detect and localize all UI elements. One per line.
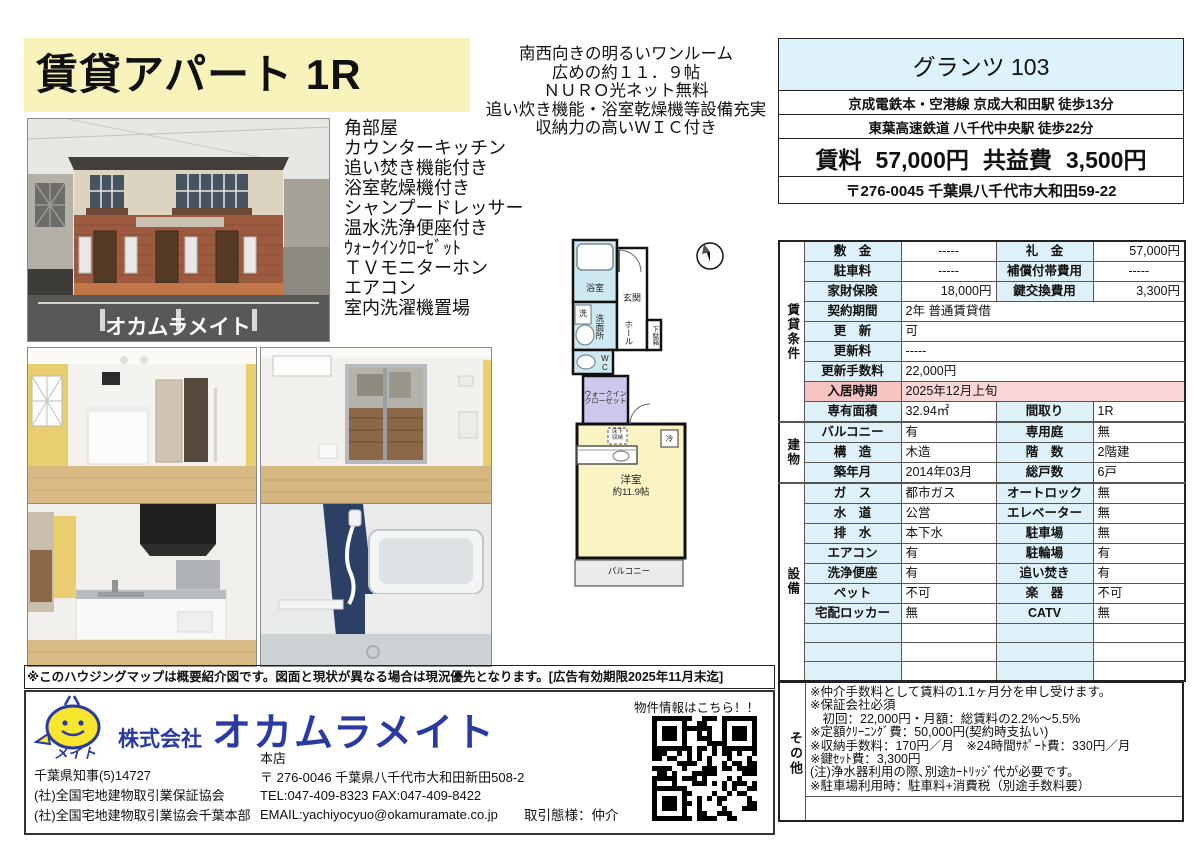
qr-code xyxy=(652,716,757,821)
head-office-info: 本店 〒 276-0046 千葉県八千代市大和田新田508-2 TEL:047-… xyxy=(260,750,524,824)
feature-item: エアコン xyxy=(344,278,574,298)
office-tel: TEL:047-409-8323 FAX:047-409-8422 xyxy=(260,787,524,806)
bee-logo-icon: メイト xyxy=(32,694,112,762)
company-prefix: 株式会社 xyxy=(118,723,202,753)
fp-underfloor-label: 床下 収納 xyxy=(608,430,627,442)
cell-label xyxy=(996,643,1093,662)
cell-value: 有 xyxy=(901,422,996,443)
cell-label: 礼 金 xyxy=(996,241,1093,262)
table-row: 更新料 ----- xyxy=(779,342,1185,362)
cell-label: 総戸数 xyxy=(996,463,1093,484)
cell-value: 2年 普通賃貸借 xyxy=(901,302,1185,322)
rent-label: 賃料 xyxy=(816,141,862,175)
cell-label: 専用庭 xyxy=(996,422,1093,443)
cell-value: 有 xyxy=(1093,564,1185,584)
feature-item: 温水洗浄便座付き xyxy=(344,218,574,238)
property-address: 〒276-0045 千葉県八千代市大和田59-22 xyxy=(778,176,1184,204)
fp-room-label: 洋室 xyxy=(577,475,685,486)
table-row: 建物 バルコニー 有 専用庭 無 xyxy=(779,422,1185,443)
catch-line: 広めの約１１．９帖 xyxy=(476,64,776,83)
rent-row: 賃料 57,000円 共益費 3,500円 xyxy=(778,138,1184,177)
cell-label xyxy=(804,643,901,662)
table-row: 駐車料 ----- 補償付帯費用 ----- xyxy=(779,262,1185,282)
cell-value: 3,300円 xyxy=(1093,282,1185,302)
cell-value: 有 xyxy=(901,564,996,584)
fp-wc-label: WC xyxy=(600,352,608,374)
fp-shoebox-label: 下駄箱 xyxy=(650,322,657,349)
cell-value: 無 xyxy=(1093,483,1185,504)
fee-value: 3,500円 xyxy=(1066,141,1147,175)
cell-label: 駐輪場 xyxy=(996,544,1093,564)
office-email: EMAIL:yachiyocyuo@okamuramate.co.jp xyxy=(260,806,524,825)
title-banner: 賃貸アパート 1R xyxy=(24,38,470,112)
cell-label: 築年月 xyxy=(804,463,901,484)
fp-entrance-label: 玄関 xyxy=(617,294,647,303)
cell-label xyxy=(996,624,1093,643)
cell-value: 可 xyxy=(901,322,1185,342)
cell-value: 無 xyxy=(1093,604,1185,624)
cell-label: 契約期間 xyxy=(804,302,901,322)
fp-bath-label: 浴室 xyxy=(573,284,617,293)
cell-value: 2025年12月上旬 xyxy=(901,382,1185,402)
license-list: 千葉県知事(5)14727 (社)全国宅地建物取引業保証協会 (社)全国宅地建物… xyxy=(34,766,251,826)
other-notes-text: ※仲介手数料として賃料の1.1ヶ月分を申し受けます。 ※保証会社必須 初回：22… xyxy=(806,683,1182,796)
cell-label: 駐車場 xyxy=(996,524,1093,544)
table-row: 専有面積 32.94㎡ 間取り 1R xyxy=(779,402,1185,423)
floor-plan: 浴室 洗 洗面所 WC 玄関 ホール 下駄箱 ウォークイン クローゼット 洋室 … xyxy=(558,228,776,653)
section-label-rental: 賃貸条件 xyxy=(779,241,804,422)
cell-value: 有 xyxy=(1093,544,1185,564)
compass-icon xyxy=(697,243,723,269)
cell-label: 追い焚き xyxy=(996,564,1093,584)
cell-label: 入居時期 xyxy=(804,382,901,402)
cell-value: 無 xyxy=(1093,422,1185,443)
feature-item: ＴＶモニターホン xyxy=(344,258,574,278)
photo-watermark: オカムラメイト xyxy=(105,316,250,339)
fee-label: 共益費 xyxy=(983,141,1052,175)
table-row: 更 新 可 xyxy=(779,322,1185,342)
cell-value: 無 xyxy=(1093,504,1185,524)
bee-logo-text: メイト xyxy=(54,745,96,761)
table-row: 洗浄便座 有 追い焚き 有 xyxy=(779,564,1185,584)
cell-value: 2階建 xyxy=(1093,443,1185,463)
cell-value xyxy=(1093,662,1185,681)
cell-value: 本下水 xyxy=(901,524,996,544)
feature-item: 角部屋 xyxy=(344,118,574,138)
cell-label: 専有面積 xyxy=(804,402,901,423)
cell-label: 更 新 xyxy=(804,322,901,342)
table-row: 設備 ガ ス 都市ガス オートロック 無 xyxy=(779,483,1185,504)
cell-value: 57,000円 xyxy=(1093,241,1185,262)
table-row-movein: 入居時期 2025年12月上旬 xyxy=(779,382,1185,402)
section-label-other: その他 xyxy=(780,683,806,820)
cell-value: 2014年03月 xyxy=(901,463,996,484)
fp-washroom-label: 洗面所 xyxy=(595,306,604,348)
table-row: 築年月 2014年03月 総戸数 6戸 xyxy=(779,463,1185,484)
cell-label: 鍵交換費用 xyxy=(996,282,1093,302)
interior-photo-room-image xyxy=(261,348,491,503)
cell-label: エアコン xyxy=(804,544,901,564)
cell-value xyxy=(901,643,996,662)
table-row: 賃貸条件 敷 金 ----- 礼 金 57,000円 xyxy=(779,241,1185,262)
table-row: ペット 不可 楽 器 不可 xyxy=(779,584,1185,604)
bathroom-photo-image xyxy=(261,504,491,666)
cell-value: 都市ガス xyxy=(901,483,996,504)
conditions-table: 賃貸条件 敷 金 ----- 礼 金 57,000円 駐車料 ----- 補償付… xyxy=(778,240,1186,682)
cell-value: 18,000円 xyxy=(901,282,996,302)
feature-item: 室内洗濯機置場 xyxy=(344,298,574,318)
cell-label: 排 水 xyxy=(804,524,901,544)
fp-washer-label: 洗 xyxy=(575,310,591,318)
cell-label xyxy=(804,624,901,643)
interior-photo-living xyxy=(27,347,257,504)
other-empty-row xyxy=(806,796,1182,820)
section-label-building: 建物 xyxy=(779,422,804,483)
office-label: 本店 xyxy=(260,750,524,769)
cell-label: 補償付帯費用 xyxy=(996,262,1093,282)
cell-value xyxy=(901,624,996,643)
cell-label: 階 数 xyxy=(996,443,1093,463)
cell-value: 無 xyxy=(1093,524,1185,544)
cell-label: 構 造 xyxy=(804,443,901,463)
cell-value: 公営 xyxy=(901,504,996,524)
cell-label: オートロック xyxy=(996,483,1093,504)
other-notes-box: その他 ※仲介手数料として賃料の1.1ヶ月分を申し受けます。 ※保証会社必須 初… xyxy=(778,681,1184,822)
fp-balcony-label: バルコニー xyxy=(575,567,683,576)
exterior-photo-image: オカムラメイト xyxy=(28,119,329,341)
cell-label: 更新手数料 xyxy=(804,362,901,382)
note-line: ※駐車場利用時：駐車料+消費税（別途手数料要） xyxy=(810,780,1178,793)
cell-value: 22,000円 xyxy=(901,362,1185,382)
interior-photo-room xyxy=(260,347,492,504)
qr-label: 物件情報はこちら！！ xyxy=(634,697,759,716)
cell-label xyxy=(996,662,1093,681)
section-label-facility: 設備 xyxy=(779,483,804,681)
exterior-photo: オカムラメイト xyxy=(27,118,330,342)
cell-value xyxy=(1093,643,1185,662)
cell-label: ガ ス xyxy=(804,483,901,504)
catch-line: 南西向きの明るいワンルーム xyxy=(476,45,776,64)
bathroom-photo xyxy=(260,503,492,667)
other-notes-body: ※仲介手数料として賃料の1.1ヶ月分を申し受けます。 ※保証会社必須 初回：22… xyxy=(806,683,1182,820)
feature-item: 追い焚き機能付き xyxy=(344,158,574,178)
cell-value: 1R xyxy=(1093,402,1185,423)
fp-fridge-label: 冷 xyxy=(661,435,678,443)
cell-label: 宅配ロッカー xyxy=(804,604,901,624)
feature-item: シャンプードレッサー xyxy=(344,198,574,218)
fp-hall-label: ホール xyxy=(624,318,633,348)
table-row: エアコン 有 駐輪場 有 xyxy=(779,544,1185,564)
catch-line: 追い炊き機能・浴室乾燥機等設備充実 xyxy=(476,101,776,120)
qr-code-image xyxy=(652,716,757,821)
fp-wic-line2: クローゼット xyxy=(583,398,628,405)
flyer-page: 賃貸アパート 1R 南西向きの明るいワンルーム 広めの約１１．９帖 ＮＵＲＯ光ネ… xyxy=(0,0,1200,848)
cell-label: 水 道 xyxy=(804,504,901,524)
cell-label: バルコニー xyxy=(804,422,901,443)
cell-value: 不可 xyxy=(1093,584,1185,604)
cell-label xyxy=(804,662,901,681)
cell-value xyxy=(901,662,996,681)
rent-value: 57,000円 xyxy=(876,141,969,175)
cell-label: CATV xyxy=(996,604,1093,624)
table-row: 契約期間 2年 普通賃貸借 xyxy=(779,302,1185,322)
deal-type: 取引態様：仲介 xyxy=(524,804,619,824)
access-line-2: 東葉高速鉄道 八千代中央駅 徒歩22分 xyxy=(778,114,1184,139)
note-line: ※定額ｸﾘｰﾆﾝｸﾞ費：50,000円(契約時支払い) xyxy=(810,726,1178,739)
note-line: ※保証会社必須 xyxy=(810,699,1178,712)
office-address: 〒 276-0046 千葉県八千代市大和田新田508-2 xyxy=(260,769,524,788)
kitchen-photo xyxy=(27,503,257,667)
property-name: グランツ 103 xyxy=(778,38,1184,91)
license-line: 千葉県知事(5)14727 xyxy=(34,766,251,786)
property-header: グランツ 103 京成電鉄本・空港線 京成大和田駅 徒歩13分 東葉高速鉄道 八… xyxy=(778,38,1184,204)
cell-value: 32.94㎡ xyxy=(901,402,996,423)
cell-label: ペット xyxy=(804,584,901,604)
disclaimer-text: ※このハウジングマップは概要紹介図です。図面と現状が異なる場合は現況優先となりま… xyxy=(24,665,775,689)
cell-value: ----- xyxy=(1093,262,1185,282)
feature-item: カウンターキッチン xyxy=(344,138,574,158)
fp-wic-label: ウォークイン クローゼット xyxy=(583,391,628,406)
feature-item: ｳｫｰｸｲﾝｸﾛｰｾﾞｯﾄ xyxy=(344,238,574,258)
fp-underfloor-line2: 収納 xyxy=(608,436,627,442)
cell-label: 敷 金 xyxy=(804,241,901,262)
cell-label: 家財保険 xyxy=(804,282,901,302)
catch-line: ＮＵＲＯ光ネット無料 xyxy=(476,82,776,101)
cell-value: ----- xyxy=(901,342,1185,362)
cell-value: ----- xyxy=(901,262,996,282)
kitchen-photo-image xyxy=(28,504,256,666)
table-row: 更新手数料 22,000円 xyxy=(779,362,1185,382)
cell-value: 有 xyxy=(901,544,996,564)
cell-value: ----- xyxy=(901,241,996,262)
table-row: 構 造 木造 階 数 2階建 xyxy=(779,443,1185,463)
cell-label: 洗浄便座 xyxy=(804,564,901,584)
access-line-1: 京成電鉄本・空港線 京成大和田駅 徒歩13分 xyxy=(778,90,1184,115)
cell-label: 駐車料 xyxy=(804,262,901,282)
company-box: メイト 株式会社 オカムラメイト 千葉県知事(5)14727 (社)全国宅地建物… xyxy=(24,690,775,835)
cell-value: 6戸 xyxy=(1093,463,1185,484)
table-row-empty xyxy=(779,662,1185,681)
cell-label: 間取り xyxy=(996,402,1093,423)
table-row: 家財保険 18,000円 鍵交換費用 3,300円 xyxy=(779,282,1185,302)
note-line: (注)浄水器利用の際､別途ｶｰﾄﾘｯｼﾞ代が必要です。 xyxy=(810,766,1178,779)
license-line: (社)全国宅地建物取引業保証協会 xyxy=(34,786,251,806)
table-row-empty xyxy=(779,643,1185,662)
interior-photo-living-image xyxy=(28,348,256,503)
cell-value: 無 xyxy=(901,604,996,624)
table-row: 水 道 公営 エレベーター 無 xyxy=(779,504,1185,524)
feature-item: 浴室乾燥機付き xyxy=(344,178,574,198)
cell-label: エレベーター xyxy=(996,504,1093,524)
cell-value: 木造 xyxy=(901,443,996,463)
page-title: 賃貸アパート 1R xyxy=(24,38,470,112)
table-row: 排 水 本下水 駐車場 無 xyxy=(779,524,1185,544)
cell-value: 不可 xyxy=(901,584,996,604)
license-line: (社)全国宅地建物取引業協会千葉本部 xyxy=(34,806,251,826)
cell-value xyxy=(1093,624,1185,643)
fp-room-size-label: 約11.9帖 xyxy=(577,488,685,498)
cell-label: 楽 器 xyxy=(996,584,1093,604)
table-row: 宅配ロッカー 無 CATV 無 xyxy=(779,604,1185,624)
cell-label: 更新料 xyxy=(804,342,901,362)
table-row-empty xyxy=(779,624,1185,643)
feature-list: 角部屋 カウンターキッチン 追い焚き機能付き 浴室乾燥機付き シャンプードレッサ… xyxy=(344,118,574,318)
